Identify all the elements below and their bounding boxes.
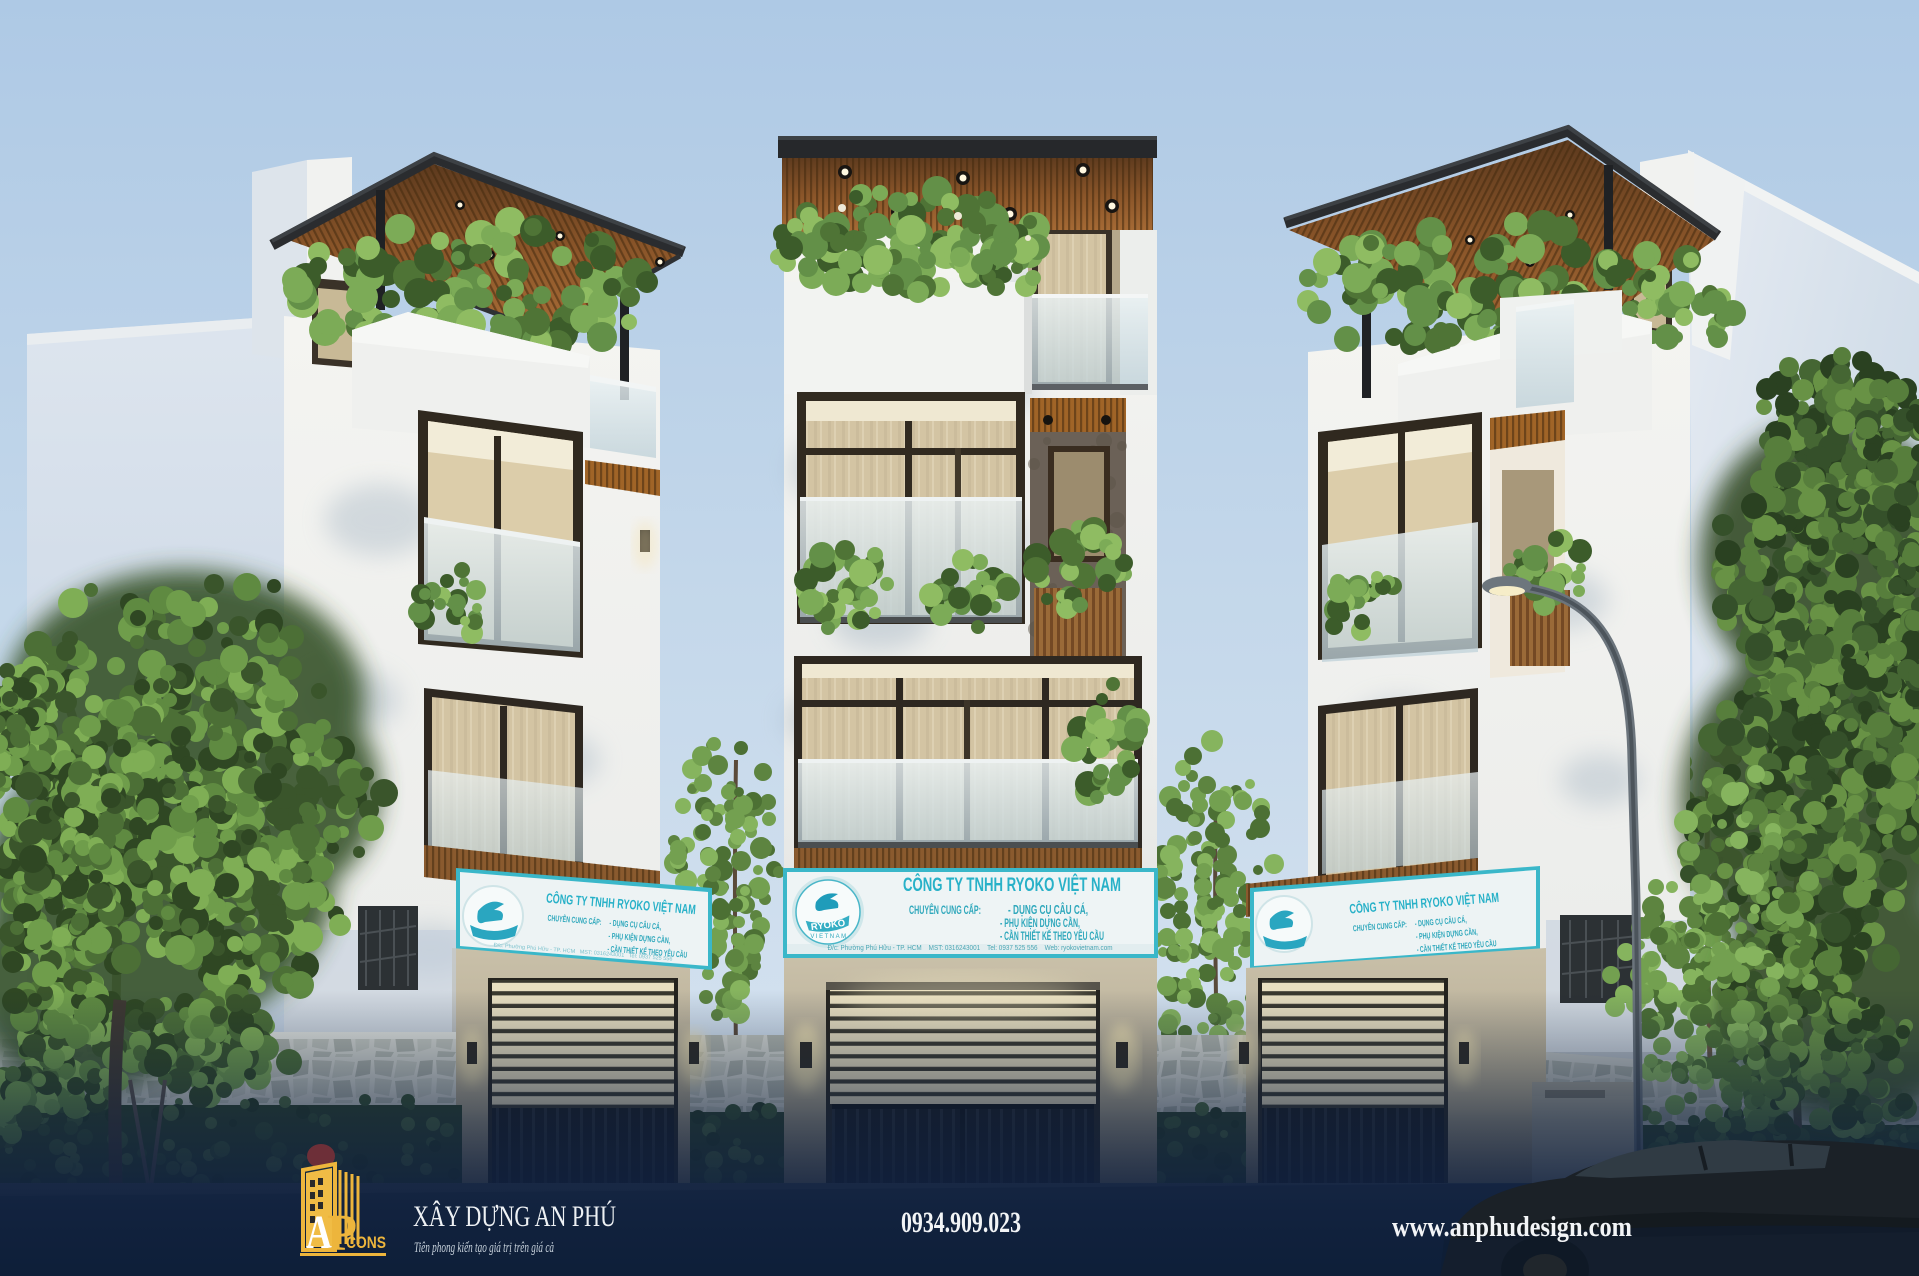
svg-text:www.anphudesign.com: www.anphudesign.com: [1392, 1212, 1632, 1243]
svg-text:VIETNAM: VIETNAM: [810, 934, 847, 940]
svg-text:0934.909.023: 0934.909.023: [901, 1206, 1021, 1239]
svg-text:Tiên phong kiến tạo giá trị tr: Tiên phong kiến tạo giá trị trên giá cả: [414, 1240, 554, 1256]
svg-text:CÔNG TY TNHH RYOKO VIỆT NAM: CÔNG TY TNHH RYOKO VIỆT NAM: [903, 872, 1121, 896]
svg-text:CHUYÊN CUNG CẤP:: CHUYÊN CUNG CẤP:: [909, 902, 981, 917]
svg-text:XÂY DỰNG AN PHÚ: XÂY DỰNG AN PHÚ: [413, 1200, 616, 1233]
svg-text:CONS: CONS: [346, 1233, 386, 1252]
svg-text:- PHỤ KIỆN DỰNG CẦN,: - PHỤ KIỆN DỰNG CẦN,: [1000, 915, 1080, 930]
svg-text:Đ/c: Phường Phú Hữu - TP. HCM: Đ/c: Phường Phú Hữu - TP. HCM MST: 03162…: [828, 945, 1113, 952]
svg-text:- DỤNG CỤ CÂU CÁ,: - DỤNG CỤ CÂU CÁ,: [1008, 902, 1088, 917]
svg-text:- CẦN THIẾT KẾ THEO YÊU CẦU: - CẦN THIẾT KẾ THEO YÊU CẦU: [1000, 928, 1104, 943]
